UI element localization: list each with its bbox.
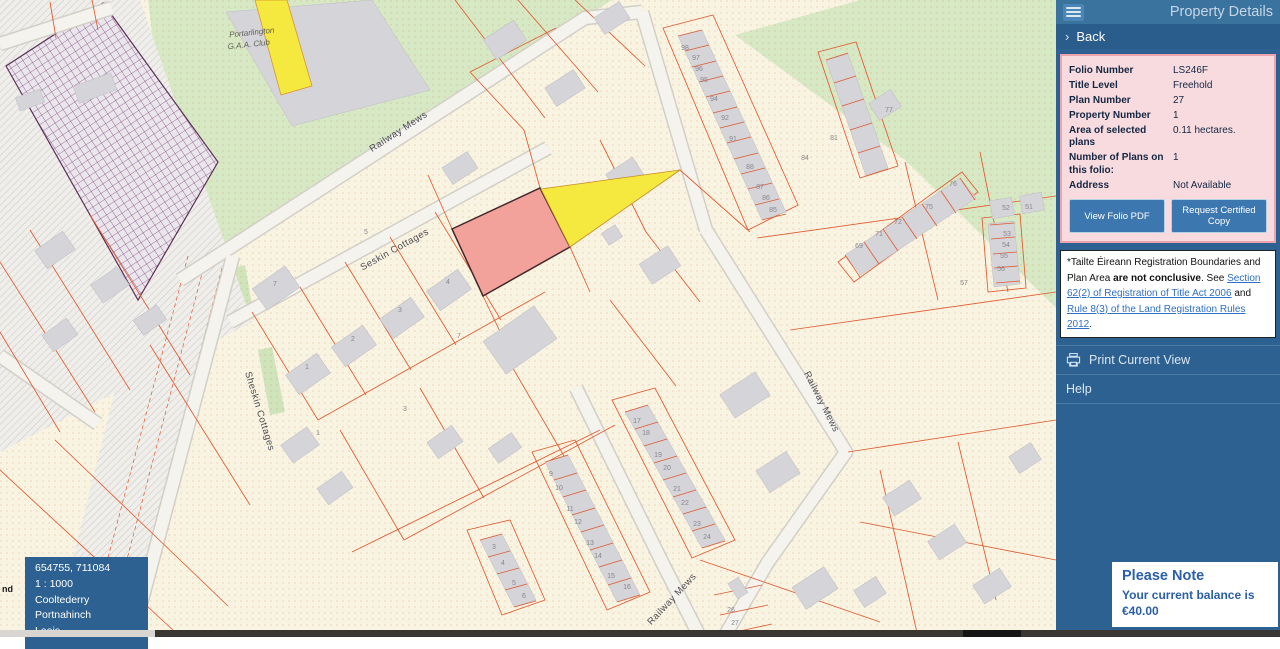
house-number: 3 <box>403 406 407 413</box>
print-current-view-button[interactable]: Print Current View <box>1056 345 1280 375</box>
house-number: 2 <box>351 336 355 343</box>
house-number: 7 <box>457 333 461 340</box>
house-number: 97 <box>692 55 700 62</box>
property-details-box: Folio NumberLS246F Title LevelFreehold P… <box>1060 54 1276 243</box>
detail-row: Property Number1 <box>1069 110 1267 123</box>
house-number: 26 <box>727 607 735 614</box>
view-folio-pdf-button[interactable]: View Folio PDF <box>1069 199 1165 233</box>
taskbar-dark-segment <box>963 630 1021 637</box>
detail-row: Number of Plans on this folio:1 <box>1069 152 1267 177</box>
house-number: 96 <box>695 66 703 73</box>
house-number: 84 <box>801 155 809 162</box>
house-number: 11 <box>566 506 573 513</box>
house-number: 13 <box>586 540 594 547</box>
house-number: 57 <box>960 280 968 287</box>
house-number: 19 <box>654 452 662 459</box>
house-number: 77 <box>885 107 893 114</box>
chevron-right-icon: › <box>1065 29 1069 44</box>
house-number: 24 <box>703 534 711 541</box>
house-number: 5 <box>364 229 368 236</box>
house-number: 51 <box>1025 204 1033 211</box>
address-value: Not Available <box>1173 180 1231 193</box>
house-number: 12 <box>574 519 582 526</box>
house-number: 4 <box>501 560 505 567</box>
house-number: 85 <box>769 207 777 214</box>
detail-row: AddressNot Available <box>1069 180 1267 193</box>
help-button[interactable]: Help <box>1056 375 1280 404</box>
house-number: 15 <box>607 573 615 580</box>
detail-row: Area of selected plans0.11 hectares. <box>1069 125 1267 150</box>
taskbar <box>0 630 1280 637</box>
house-number: 27 <box>731 620 739 627</box>
house-number: 7 <box>273 281 277 288</box>
menu-icon[interactable] <box>1063 4 1084 21</box>
property-details-panel: Property Details › Back Folio NumberLS24… <box>1056 0 1280 630</box>
partial-label: nd <box>2 584 13 594</box>
request-certified-copy-button[interactable]: Request Certified Copy <box>1171 199 1267 233</box>
house-number: 21 <box>673 486 681 493</box>
detail-row: Title LevelFreehold <box>1069 80 1267 93</box>
house-number: 88 <box>746 164 754 171</box>
house-number: 22 <box>681 500 689 507</box>
house-number: 55 <box>1000 253 1008 260</box>
house-number: 4 <box>446 279 450 286</box>
house-number: 72 <box>894 219 902 226</box>
house-number: 52 <box>1002 205 1010 212</box>
house-number: 6 <box>522 593 526 600</box>
house-number: 54 <box>1002 242 1010 249</box>
house-number: 20 <box>663 465 671 472</box>
house-number: 14 <box>594 553 602 560</box>
plans-count-value: 1 <box>1173 152 1179 177</box>
panel-title: Property Details <box>1170 4 1273 20</box>
title-level-value: Freehold <box>1173 80 1212 93</box>
house-number: 87 <box>756 184 764 191</box>
house-number: 9 <box>549 471 553 478</box>
detail-row: Folio NumberLS246F <box>1069 65 1267 78</box>
taskbar-light-segment <box>0 630 155 637</box>
house-number: 81 <box>830 135 838 142</box>
printer-icon <box>1066 353 1081 367</box>
link-rule-8[interactable]: Rule 8(3) of the Land Registration Rules… <box>1067 304 1245 331</box>
back-label: Back <box>1076 29 1105 44</box>
plan-number-value: 27 <box>1173 95 1184 108</box>
house-number: 1 <box>316 430 320 437</box>
house-number: 86 <box>762 195 770 202</box>
balance-note: Please Note Your current balance is €40.… <box>1112 562 1278 627</box>
house-number: 95 <box>700 77 708 84</box>
area-value: 0.11 hectares. <box>1173 125 1236 150</box>
house-number: 94 <box>710 96 718 103</box>
map-scale: 1 : 1000 <box>35 577 148 593</box>
house-number: 3 <box>398 307 402 314</box>
house-number: 10 <box>555 485 563 492</box>
note-title: Please Note <box>1122 568 1268 584</box>
map-canvas[interactable]: PortarlingtonG.A.A. ClubRailway MewsSesk… <box>0 0 1056 637</box>
house-number: 56 <box>997 266 1005 273</box>
house-number: 91 <box>729 136 737 143</box>
folio-number-value: LS246F <box>1173 65 1208 78</box>
note-balance-amount: €40.00 <box>1122 603 1268 619</box>
detail-row: Plan Number27 <box>1069 95 1267 108</box>
house-number: 17 <box>633 418 641 425</box>
disclaimer-box: *Tailte Éireann Registration Boundaries … <box>1060 250 1276 338</box>
house-number: 69 <box>855 243 863 250</box>
house-number: 18 <box>642 430 650 437</box>
house-number: 98 <box>681 45 689 52</box>
house-number: 23 <box>693 521 701 528</box>
house-number: 53 <box>1003 231 1011 238</box>
house-number: 92 <box>721 115 729 122</box>
house-number: 5 <box>512 580 516 587</box>
panel-header: Property Details <box>1056 0 1280 24</box>
area-name: Portnahinch <box>35 608 148 624</box>
cadastral-map: PortarlingtonG.A.A. ClubRailway MewsSesk… <box>0 0 1056 637</box>
townland-name: Cooltederry <box>35 593 148 609</box>
back-button[interactable]: › Back <box>1056 24 1280 49</box>
map-coordinates: 654755, 711084 <box>35 561 148 577</box>
house-number: 1 <box>305 364 309 371</box>
house-number: 71 <box>875 231 883 238</box>
house-number: 76 <box>949 181 957 188</box>
note-balance-text: Your current balance is <box>1122 587 1268 603</box>
property-number-value: 1 <box>1173 110 1179 123</box>
house-number: 16 <box>623 584 631 591</box>
house-number: 3 <box>492 544 496 551</box>
house-number: 75 <box>925 204 933 211</box>
